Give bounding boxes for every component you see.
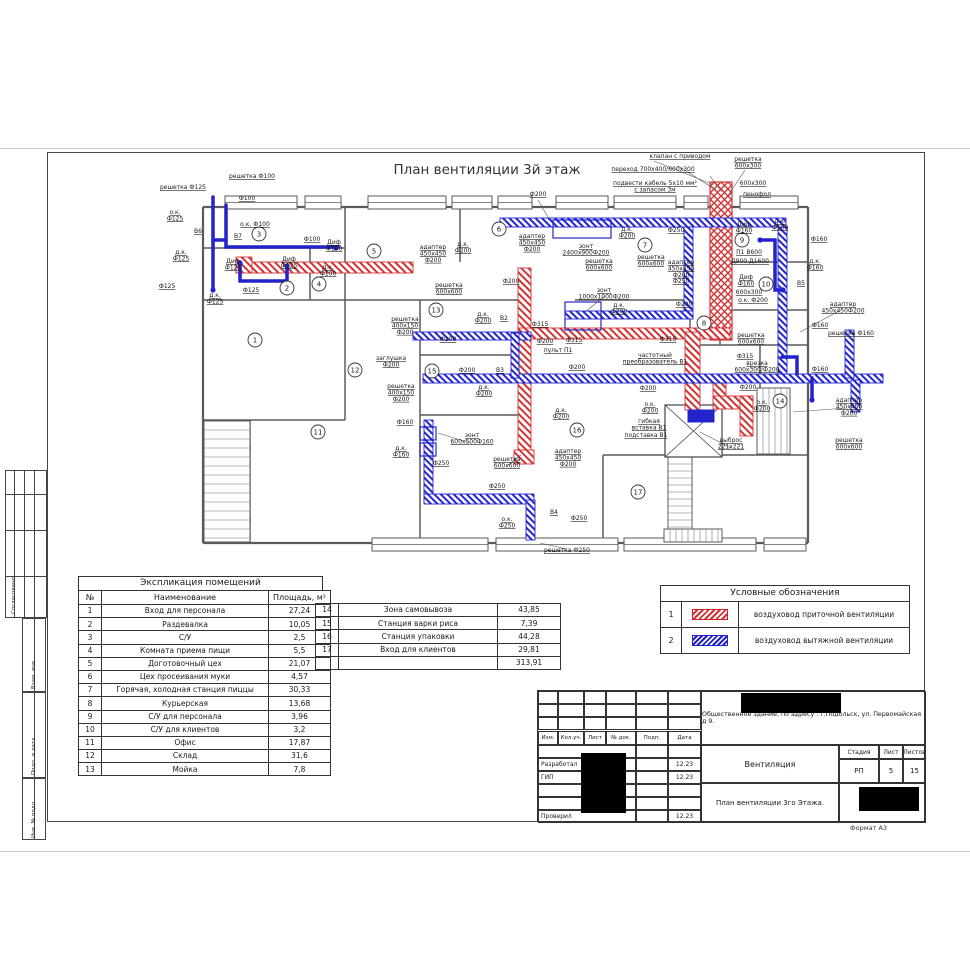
plan-annotation: B5 xyxy=(797,280,805,287)
room-number: 12 xyxy=(351,366,360,374)
table-cell xyxy=(316,656,339,669)
tb-sign xyxy=(636,784,668,797)
plan-annotation: зонт1000x1000Ф200 xyxy=(579,287,630,300)
plan-annotation: Д900 Д1600 xyxy=(731,258,769,265)
tb-date xyxy=(668,784,701,797)
table-cell: 5 xyxy=(79,657,102,670)
plan-annotation: решетка Ф100 xyxy=(229,173,275,180)
tb-date: 12.23 xyxy=(668,758,701,771)
table-cell: 3,96 xyxy=(269,710,331,723)
plan-annotation: Ф200 xyxy=(676,301,693,308)
tb-stage-value: 5 xyxy=(879,759,903,783)
sheet: 1234567891011121314151617решетка Ф125реш… xyxy=(0,0,970,970)
plan-annotation: B2 xyxy=(500,315,508,322)
room-number: 5 xyxy=(372,247,376,255)
table-cell: 7 xyxy=(79,684,102,697)
duct-exhaust xyxy=(424,420,433,500)
table-cell: С/У xyxy=(102,631,269,644)
duct-exhaust xyxy=(845,330,854,378)
plan-annotation: решетка Ф160 xyxy=(828,330,874,337)
table-cell: 3,2 xyxy=(269,723,331,736)
redacted-box xyxy=(859,787,919,811)
legend-label: воздуховод вытяжной вентиляции xyxy=(739,628,909,653)
plan-annotation: Ф100 xyxy=(239,195,256,202)
tb-grid-cell xyxy=(538,717,558,730)
table-row: 14Зона самовывоза43,85 xyxy=(316,604,561,617)
table-cell: 7,39 xyxy=(498,617,561,630)
plan-annotation: пенофол xyxy=(743,191,771,198)
duct-supply-unit xyxy=(710,182,732,340)
tb-grid-cell xyxy=(636,704,668,717)
tb-date: 12.23 xyxy=(668,771,701,784)
tb-project: Вентиляция xyxy=(701,745,839,783)
explication-title: Экспликация помещений xyxy=(78,576,323,590)
table-row: 1Вход для персонала27,24 xyxy=(79,605,331,618)
legend-label: воздуховод приточной вентиляции xyxy=(739,602,909,627)
tb-sheet-title: План вентиляции 3го Этажа. xyxy=(701,783,839,823)
table-cell: Станция упаковки xyxy=(339,630,498,643)
plan-annotation: клапан с приводом xyxy=(650,153,711,160)
table-row: 6Цех просеивания муки4,57 xyxy=(79,670,331,683)
table-cell: 3 xyxy=(79,631,102,644)
duct-supply xyxy=(518,268,531,456)
table-cell: Комната приема пищи xyxy=(102,644,269,657)
table-cell: Зона самовывоза xyxy=(339,604,498,617)
diffuser-dot xyxy=(757,237,762,242)
room-number: 8 xyxy=(702,319,706,327)
leader-line xyxy=(538,200,549,219)
legend-item: 2воздуховод вытяжной вентиляции xyxy=(661,628,909,653)
tb-stage-header: Листов xyxy=(903,745,926,759)
table-row: 12Склад31,6 xyxy=(79,750,331,763)
table-row: 2Раздевалка10,05 xyxy=(79,618,331,631)
plan-annotation: Ф250 xyxy=(668,227,685,234)
tb-date: 12.23 xyxy=(668,810,701,823)
plan-annotation: врезка600x300/Ф200 xyxy=(734,360,779,373)
plan-annotation: д.к.Ф200 xyxy=(476,384,493,397)
tb-grid-cell xyxy=(668,691,701,704)
plan-annotation: Ф315 xyxy=(660,336,677,343)
plan-annotation: о.к.Ф125 xyxy=(167,209,184,222)
plan-annotation: адаптер450x450Ф200 xyxy=(836,397,863,417)
table-row: 4Комната приема пищи5,5 xyxy=(79,644,331,657)
plan-annotation: д.к.Ф200 xyxy=(611,302,628,315)
table-cell: 7,8 xyxy=(269,763,331,776)
titleblock: Изм.Кол.уч.Лист№ док.Подп.ДатаРазработал… xyxy=(537,690,925,822)
table-row: №НаименованиеПлощадь, м² xyxy=(79,591,331,605)
room-number: 9 xyxy=(740,236,744,244)
table-cell: Курьерская xyxy=(102,697,269,710)
tb-grid-cell xyxy=(668,704,701,717)
duct-exhaust xyxy=(424,494,534,504)
plan-annotation: Ф200 xyxy=(640,385,657,392)
table-row: 15Станция варки риса7,39 xyxy=(316,617,561,630)
plan-annotation: Ф200 xyxy=(503,278,520,285)
plan-annotation: Ф250 xyxy=(489,483,506,490)
tb-grid-cell xyxy=(538,691,558,704)
tb-grid-cell xyxy=(636,691,668,704)
room-number: 15 xyxy=(428,367,437,375)
explication-table: Экспликация помещений №НаименованиеПлоща… xyxy=(78,576,323,776)
plan-annotation: заглушкаФ200 xyxy=(376,355,407,368)
plan-annotation: Ф160 xyxy=(397,419,414,426)
table-cell: № xyxy=(79,591,102,605)
room-number: 16 xyxy=(573,426,582,434)
plan-annotation: B3 xyxy=(496,367,504,374)
tb-sign xyxy=(636,745,668,758)
room-number: 6 xyxy=(497,225,502,233)
plan-annotation: о.к. Ф100 xyxy=(240,221,270,228)
plan-annotation: адаптер450x450Ф200 xyxy=(519,233,546,253)
legend-swatch-supply xyxy=(692,609,728,620)
plan-annotation: зонт600x500Ф160 xyxy=(450,432,493,445)
redacted-box xyxy=(741,693,841,713)
table-row: 7Горячая, холодная станция пиццы30,33 xyxy=(79,684,331,697)
table-cell: 9 xyxy=(79,710,102,723)
table-row: 313,91 xyxy=(316,656,561,669)
table-row: 8Курьерская13,68 xyxy=(79,697,331,710)
tb-grid-cell xyxy=(636,717,668,730)
plan-annotation: гибкаявставка В1 xyxy=(632,418,667,431)
stamp-label: Инв. № подл. xyxy=(31,800,37,838)
stamp-divider xyxy=(34,470,35,618)
stamp-divider xyxy=(24,470,25,618)
plan-annotation: Ф200 xyxy=(537,338,554,345)
redacted-box xyxy=(581,753,626,813)
legend-num: 1 xyxy=(661,602,682,627)
format-label: Формат А3 xyxy=(850,824,887,832)
legend: Условные обозначения 1воздуховод приточн… xyxy=(660,585,910,654)
plan-annotation: решетка600x600 xyxy=(435,282,463,295)
plan-annotation: решетка600x300 xyxy=(734,156,762,169)
plan-annotation: B4 xyxy=(550,509,558,516)
plan-annotation: П1 В600 xyxy=(736,249,762,256)
room-number: 1 xyxy=(253,336,257,344)
floor-plan: 1234567891011121314151617решетка Ф125реш… xyxy=(0,0,970,970)
stamp-divider xyxy=(14,470,15,618)
tb-grid-cell xyxy=(668,717,701,730)
table-cell: 44,28 xyxy=(498,630,561,643)
room-number: 14 xyxy=(776,397,785,405)
table-cell: 4 xyxy=(79,644,102,657)
plan-annotation: ДифФ125 xyxy=(225,258,242,271)
plan-annotation: выброс221x221 xyxy=(718,437,745,450)
stamp-divider xyxy=(5,494,47,495)
plan-annotation: Ф315 xyxy=(737,353,754,360)
duct-supply xyxy=(685,332,700,410)
duct-exhaust xyxy=(511,333,519,378)
plan-annotation: решетка600x600 xyxy=(585,258,613,271)
table-row: 11Офис17,87 xyxy=(79,736,331,749)
plan-annotation: B7 xyxy=(234,233,242,240)
plan-annotation: Ф250 xyxy=(571,515,588,522)
tb-date xyxy=(668,797,701,810)
table-cell: 43,85 xyxy=(498,604,561,617)
plan-annotation: ДифФ160 xyxy=(738,274,755,287)
table-row: 3С/У2,5 xyxy=(79,631,331,644)
stair xyxy=(664,529,722,542)
diffuser-dot xyxy=(780,287,785,292)
plan-annotation: подставка В1 xyxy=(625,432,668,439)
tb-grid-cell xyxy=(558,717,584,730)
plan-annotation: решетка400x150Ф200 xyxy=(387,383,415,403)
tb-stage-value: 15 xyxy=(903,759,926,783)
plan-annotation: решетка600x600 xyxy=(835,437,863,450)
tb-grid-cell xyxy=(584,704,606,717)
table-cell xyxy=(339,656,498,669)
table-cell: Станция варки риса xyxy=(339,617,498,630)
plan-annotation: Ф160 xyxy=(812,322,829,329)
table-cell: С/У для персонала xyxy=(102,710,269,723)
tb-grid-cell xyxy=(606,704,636,717)
duct-exhaust xyxy=(423,374,883,383)
table-cell: 17,87 xyxy=(269,736,331,749)
table-cell: 31,6 xyxy=(269,750,331,763)
plan-annotation: д.к.Ф125 xyxy=(173,249,190,262)
table-row: 5Доготовочный цех21,07 xyxy=(79,657,331,670)
tb-grid-cell xyxy=(606,717,636,730)
table-cell: Доготовочный цех xyxy=(102,657,269,670)
room-number: 2 xyxy=(285,284,289,292)
table-cell: Вход для персонала xyxy=(102,605,269,618)
plan-annotation: Ф160 xyxy=(812,366,829,373)
table-cell: 4,57 xyxy=(269,670,331,683)
table-cell: 10 xyxy=(79,723,102,736)
table-cell: 8 xyxy=(79,697,102,710)
plan-annotation: подвести кабель 5x10 мм²с запасом 3м xyxy=(613,180,698,193)
table-row: 16Станция упаковки44,28 xyxy=(316,630,561,643)
tb-col-header: Подп. xyxy=(636,731,668,745)
plan-annotation: Ф200 xyxy=(740,384,757,391)
tb-col-header: Дата xyxy=(668,731,701,745)
room-number: 7 xyxy=(643,241,647,249)
table-cell: Вход для клиентов xyxy=(339,643,498,656)
stamp-label: Подп. и дата xyxy=(31,738,37,775)
legend-item: 1воздуховод приточной вентиляции xyxy=(661,602,909,628)
table-cell: 16 xyxy=(316,630,339,643)
table-cell: 30,33 xyxy=(269,684,331,697)
room-number: 17 xyxy=(634,488,643,496)
table-cell: 13 xyxy=(79,763,102,776)
table-cell: 11 xyxy=(79,736,102,749)
plan-annotation: Ф200 xyxy=(530,191,547,198)
tb-col-header: № док. xyxy=(606,731,636,745)
table-cell: 17 xyxy=(316,643,339,656)
plan-annotation: адаптер450x450Ф200 xyxy=(420,244,447,264)
plan-annotation: д.к.Ф160 xyxy=(393,445,410,458)
plan-annotation: Ф160 xyxy=(811,236,828,243)
plan-annotation: решетка Ф125 xyxy=(160,184,206,191)
plan-annotation: о.к.Ф200 xyxy=(642,401,659,414)
table-cell: 13,68 xyxy=(269,697,331,710)
plan-annotation: д.к.Ф200 xyxy=(619,226,636,239)
plan-annotation: переход 700x400/600x300 xyxy=(611,166,695,173)
tb-sign xyxy=(636,810,668,823)
room-number: 11 xyxy=(314,428,323,436)
plan-annotation: ДифФ125 xyxy=(281,256,298,269)
plan-annotation: решетка600x600 xyxy=(737,332,765,345)
plan-annotation: решетка600x600 xyxy=(493,456,521,469)
table-cell: 2 xyxy=(79,618,102,631)
plan-annotation: Ф200 xyxy=(459,367,476,374)
tb-grid-cell xyxy=(606,691,636,704)
room-number: 10 xyxy=(762,280,771,288)
duct-supply xyxy=(740,396,753,436)
duct-exhaust xyxy=(778,227,787,377)
plan-annotation: частотныйпреобразователь В1 xyxy=(623,352,688,365)
table-cell: Цех просеивания муки xyxy=(102,670,269,683)
plan-annotation: д.к.Ф125 xyxy=(207,292,224,305)
table-cell: 1 xyxy=(79,605,102,618)
plan-annotation: 600x300 xyxy=(740,180,767,187)
plan-annotation: адаптер450x450Ф200 xyxy=(821,301,864,314)
tb-stage-value: РП xyxy=(839,759,879,783)
plan-annotation: о.к. Ф200 xyxy=(738,297,768,304)
tb-stage-header: Стадия xyxy=(839,745,879,759)
tb-grid-cell xyxy=(584,717,606,730)
plan-title: План вентиляции 3й этаж xyxy=(393,162,580,178)
plan-annotation: зонт2400x900Ф200 xyxy=(563,243,610,256)
table-cell: 14 xyxy=(316,604,339,617)
duct-exhaust xyxy=(526,500,535,540)
tb-col-header: Кол.уч. xyxy=(558,731,584,745)
legend-num: 2 xyxy=(661,628,682,653)
plan-annotation: Ф100 xyxy=(304,236,321,243)
plan-annotation: пульт П1 xyxy=(544,347,573,354)
tb-sign xyxy=(636,771,668,784)
plan-annotation: Ф200 xyxy=(569,364,586,371)
diffuser-dot xyxy=(809,397,814,402)
plan-annotation: B6 xyxy=(194,228,202,235)
tb-sign xyxy=(636,797,668,810)
stamp-divider xyxy=(5,576,47,577)
plan-annotation: Ф250 xyxy=(433,460,450,467)
room-number: 3 xyxy=(257,230,261,238)
fan-v1 xyxy=(688,410,714,422)
tb-col-header: Лист xyxy=(584,731,606,745)
table-cell: Горячая, холодная станция пиццы xyxy=(102,684,269,697)
room-number: 4 xyxy=(317,280,322,288)
table-cell: 12 xyxy=(79,750,102,763)
plan-annotation: Ф315 xyxy=(566,337,583,344)
table-cell: С/У для клиентов xyxy=(102,723,269,736)
tb-stage-header: Лист xyxy=(879,745,903,759)
room-number: 13 xyxy=(432,306,441,314)
legend-swatch-exhaust xyxy=(692,635,728,646)
stamp-divider xyxy=(5,530,47,531)
table-cell: Наименование xyxy=(102,591,269,605)
table-cell: Склад xyxy=(102,750,269,763)
plan-annotation: д.к.Ф200 xyxy=(553,407,570,420)
table-cell: Офис xyxy=(102,736,269,749)
table-row: 9С/У для персонала3,96 xyxy=(79,710,331,723)
table-cell: 313,91 xyxy=(498,656,561,669)
table-row: 13Мойка7,8 xyxy=(79,763,331,776)
plan-annotation: решетка Ф250 xyxy=(544,547,590,554)
table-cell: 6 xyxy=(79,670,102,683)
table-row: 10С/У для клиентов3,2 xyxy=(79,723,331,736)
table-cell: 29,81 xyxy=(498,643,561,656)
tb-col-header: Изм. xyxy=(538,731,558,745)
plan-annotation: Ф315 xyxy=(532,321,549,328)
tb-grid-cell xyxy=(558,704,584,717)
tb-grid-cell xyxy=(538,704,558,717)
legend-title: Условные обозначения xyxy=(661,586,909,602)
tb-grid-cell xyxy=(558,691,584,704)
plan-annotation: Ф125 xyxy=(159,283,176,290)
plan-annotation: Ф200 xyxy=(440,336,457,343)
stair xyxy=(668,457,692,529)
explication-table-cont: 14Зона самовывоза43,8515Станция варки ри… xyxy=(315,603,553,670)
duct-exhaust xyxy=(565,311,693,319)
plan-annotation: адаптер450x450Ф200 xyxy=(555,448,582,468)
tb-date xyxy=(668,745,701,758)
plan-annotation: решетка600x600 xyxy=(637,254,665,267)
table-cell: Мойка xyxy=(102,763,269,776)
table-row: 17Вход для клиентов29,81 xyxy=(316,643,561,656)
plan-annotation: 600x300 xyxy=(736,289,763,296)
plan-annotation: ДифФ100 xyxy=(326,239,343,252)
table-cell: Раздевалка xyxy=(102,618,269,631)
table-cell: 15 xyxy=(316,617,339,630)
plan-annotation: д.к.Ф160 xyxy=(807,258,824,271)
plan-annotation: ДифФ160 xyxy=(736,221,753,234)
tb-sign xyxy=(636,758,668,771)
stamp-label: Взам. инв. xyxy=(31,659,37,689)
plan-annotation: о.к.Ф250 xyxy=(499,516,516,529)
plan-annotation: д.к.Ф200 xyxy=(475,311,492,324)
plan-annotation: д.к.Ф200 xyxy=(455,241,472,254)
plan-annotation: Ф125 xyxy=(243,287,260,294)
tb-grid-cell xyxy=(584,691,606,704)
